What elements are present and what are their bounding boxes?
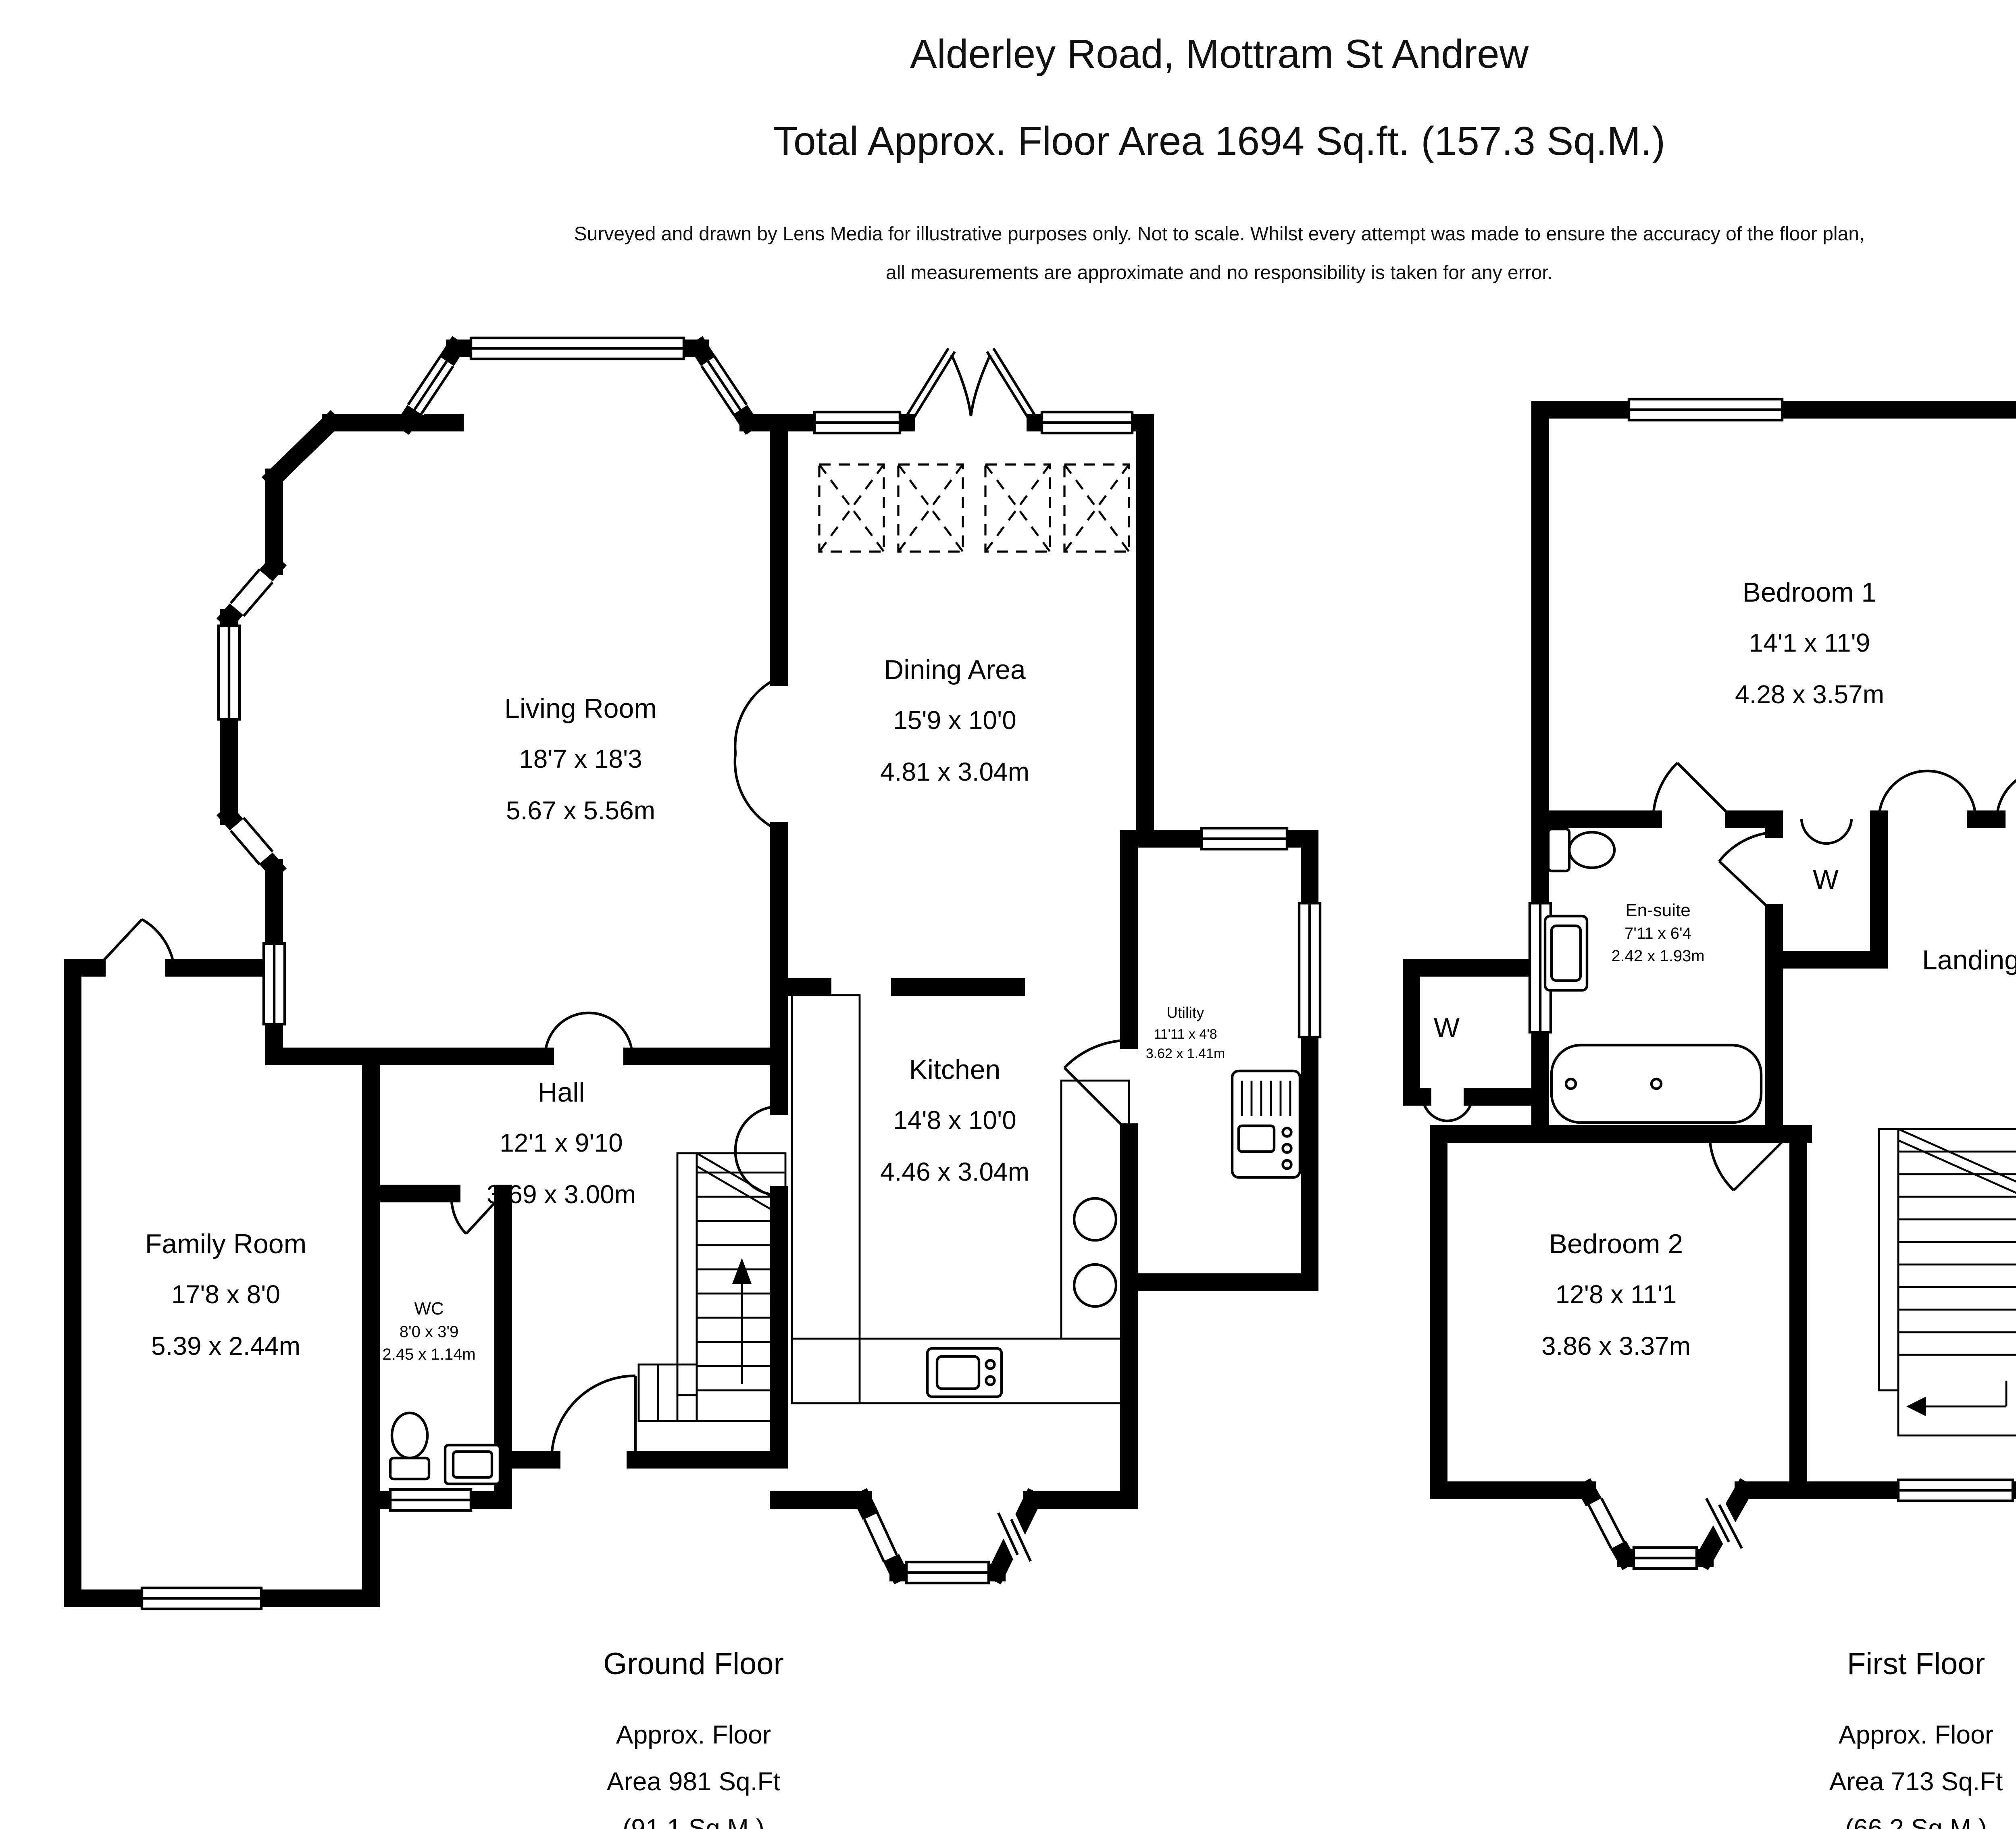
wc-sink-icon — [445, 1445, 500, 1484]
ensuite-bath-icon — [1552, 1045, 1761, 1123]
label-bedroom1: Bedroom 1 14'1 x 11'9 4.28 x 3.57m — [1735, 568, 1884, 723]
wc-toilet-icon — [390, 1413, 429, 1479]
label-family-room: Family Room 17'8 x 8'0 5.39 x 2.44m — [145, 1219, 307, 1374]
ground-floor-plan — [48, 316, 1339, 1623]
french-doors-icon — [906, 348, 1035, 419]
disclaimer: Surveyed and drawn by Lens Media for ill… — [0, 215, 2016, 292]
label-en-suite: En-suite 7'11 x 6'4 2.42 x 1.93m — [1611, 900, 1704, 969]
label-wardrobe-center: W — [1813, 865, 1839, 897]
ground-floor-area: Approx. Floor Area 981 Sq.Ft (91.1 Sq.M.… — [607, 1713, 781, 1829]
label-utility: Utility 11'11 x 4'8 3.62 x 1.41m — [1146, 1003, 1225, 1063]
label-bedroom2: Bedroom 2 12'8 x 11'1 3.86 x 3.37m — [1541, 1219, 1691, 1374]
label-dining-area: Dining Area 15'9 x 10'0 4.81 x 3.04m — [880, 645, 1029, 800]
label-wardrobe-left: W — [1434, 1013, 1460, 1045]
utility-appliance-icon — [1232, 1071, 1300, 1177]
first-floor-area: Approx. Floor Area 713 Sq.Ft (66.2 Sq.M.… — [1829, 1713, 2003, 1829]
stairs-down-icon — [1879, 1129, 2016, 1435]
disclaimer-line1: Surveyed and drawn by Lens Media for ill… — [0, 215, 2016, 253]
hob-icon — [1074, 1198, 1116, 1306]
first-floor-caption: First Floor — [1847, 1648, 1985, 1684]
label-living-room: Living Room 18'7 x 18'3 5.67 x 5.56m — [504, 684, 657, 839]
page-subtitle: Total Approx. Floor Area 1694 Sq.ft. (15… — [0, 119, 2016, 166]
disclaimer-line2: all measurements are approximate and no … — [0, 253, 2016, 292]
kitchen-sink-icon — [927, 1348, 1002, 1397]
label-kitchen: Kitchen 14'8 x 10'0 4.46 x 3.04m — [880, 1045, 1029, 1200]
label-wc: WC 8'0 x 3'9 2.45 x 1.14m — [382, 1298, 475, 1368]
ensuite-toilet-icon — [1548, 829, 1614, 871]
ground-walls — [73, 348, 1310, 1598]
floorplan-page: Alderley Road, Mottram St Andrew Total A… — [0, 0, 2016, 1829]
ensuite-sink-icon — [1545, 916, 1587, 990]
label-landing: Landing — [1922, 935, 2016, 987]
label-hall: Hall 12'1 x 9'10 3.69 x 3.00m — [487, 1068, 636, 1223]
page-title: Alderley Road, Mottram St Andrew — [0, 32, 2016, 79]
skylight-icons — [819, 465, 1129, 552]
ground-floor-caption: Ground Floor — [603, 1648, 784, 1684]
